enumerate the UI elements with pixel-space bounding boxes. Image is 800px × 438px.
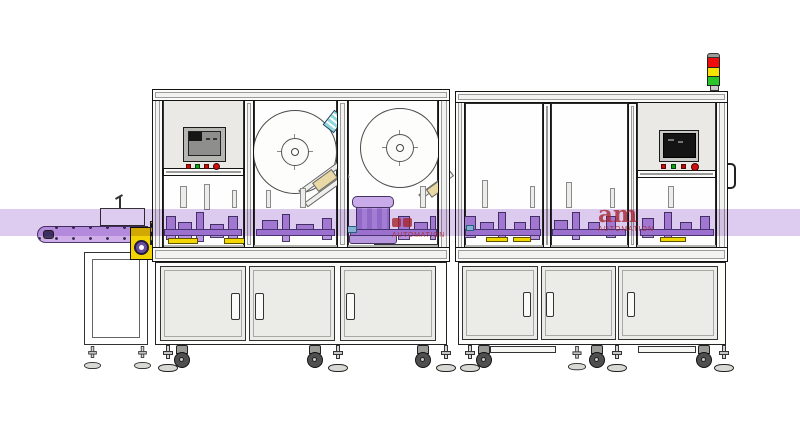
guard-post [300,188,306,208]
yellow-strip [513,237,531,242]
door-handle [523,292,531,317]
hmi-screen-dash [678,141,683,143]
guard-post [566,182,572,208]
caster-wheel [695,345,713,371]
base-crossbar [490,346,556,353]
door-handle [255,293,264,320]
left-frame-base [152,247,450,262]
tower-light-yellow [707,67,720,77]
door-handle [627,292,635,317]
highlight-band [0,209,800,236]
hmi-screen-dash [668,139,674,141]
turntable-top [352,196,394,208]
door-handle [546,292,554,317]
guard-post [420,186,426,208]
hmi-screen-right [663,133,696,158]
reel-axle-1 [291,148,299,156]
door-handle [346,293,355,320]
leveling-foot [84,346,101,370]
leveling-foot [134,346,151,370]
panel-button-red [204,164,209,169]
leveling-foot [714,345,734,373]
right-panel-divider [637,170,716,178]
yellow-strip [660,237,686,242]
leveling-foot [436,345,456,373]
conveyor-stand-inner [92,259,140,338]
sensor-pin [119,197,121,208]
panel-button-red [681,164,686,169]
base-crossbar [638,346,696,353]
hmi-screen-dash [206,138,210,140]
caster-wheel [306,345,324,371]
guard-post [232,190,237,208]
reel-axle-2 [396,144,404,152]
caster-wheel [475,345,493,371]
panel-button-green [671,164,676,169]
hmi-screen-dash [213,138,217,140]
yellow-strip [486,237,508,242]
left-panel-divider [163,168,244,176]
panel-button-green [195,164,200,169]
panel-button-red [186,164,191,169]
tower-light-green [707,76,720,86]
hmi-screen-shadow [189,132,202,141]
emergency-stop-button [213,163,220,170]
left-frame-top [152,89,450,101]
panel-button-red [661,164,666,169]
guard-post [204,184,210,210]
caster-wheel [414,345,432,371]
caster-wheel [173,345,191,371]
leveling-foot [568,346,586,371]
tower-light-red [707,57,720,68]
yellow-strip [168,238,198,244]
guard-post [482,180,488,208]
door-handle [231,293,240,320]
machine-line-diagram: AUTOMATION am AUTOMATION [0,0,800,438]
caster-wheel [588,345,606,371]
emergency-stop-button [691,163,699,171]
guard-post [266,190,271,208]
guard-post [530,186,535,208]
leveling-foot [328,345,348,373]
conveyor-gear-hub [139,245,144,250]
tower-cap [707,53,720,58]
leveling-foot [607,345,627,373]
guard-post [180,186,187,208]
right-frame-top [455,91,728,103]
right-frame-base [455,247,728,262]
